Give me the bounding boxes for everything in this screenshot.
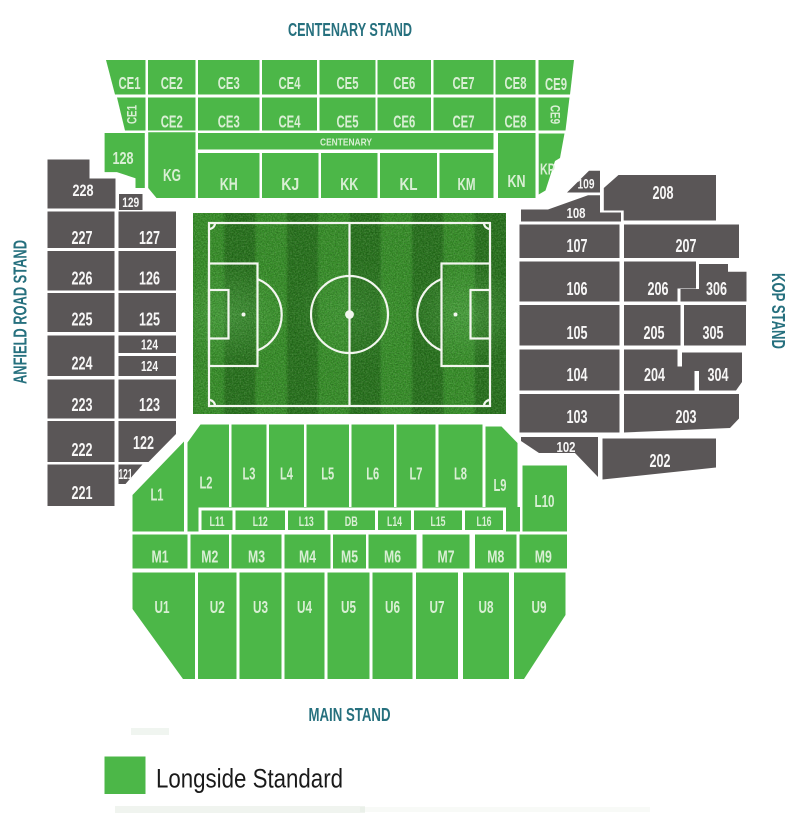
svg-text:CE8: CE8 [505,73,527,93]
svg-text:MAIN STAND: MAIN STAND [309,704,391,725]
svg-text:L8: L8 [454,464,467,484]
svg-text:CE2: CE2 [161,73,183,93]
svg-text:KM: KM [458,174,476,194]
svg-text:L11: L11 [210,514,225,529]
svg-text:305: 305 [703,323,724,343]
svg-text:M3: M3 [248,547,265,567]
svg-text:108: 108 [567,205,586,222]
svg-text:221: 221 [72,483,93,503]
svg-text:L3: L3 [243,464,256,484]
svg-text:102: 102 [557,439,576,456]
svg-text:M2: M2 [201,547,218,567]
svg-text:126: 126 [139,269,160,289]
svg-text:109: 109 [578,176,595,192]
svg-text:CE8: CE8 [505,112,527,132]
svg-text:208: 208 [653,183,674,203]
svg-text:L14: L14 [387,514,402,529]
svg-text:223: 223 [72,395,93,415]
svg-text:228: 228 [73,182,94,200]
svg-text:CE6: CE6 [393,73,415,93]
svg-text:203: 203 [676,407,697,427]
svg-text:CE6: CE6 [393,112,415,132]
svg-text:205: 205 [644,323,665,343]
svg-text:CE3: CE3 [218,73,240,93]
svg-text:L15: L15 [431,514,446,529]
svg-text:L6: L6 [366,464,379,484]
svg-text:KL: KL [400,174,418,194]
svg-text:304: 304 [708,365,729,385]
svg-text:123: 123 [139,395,160,415]
svg-text:L5: L5 [321,464,334,484]
svg-text:KG: KG [163,165,181,185]
svg-text:CE9: CE9 [548,105,563,124]
svg-text:L7: L7 [410,464,423,484]
svg-text:U5: U5 [341,597,356,617]
svg-text:202: 202 [650,451,671,471]
svg-text:CENTENARY: CENTENARY [320,137,372,149]
svg-text:KP: KP [540,162,555,179]
svg-text:CE5: CE5 [337,73,359,93]
svg-text:204: 204 [644,365,665,385]
svg-text:226: 226 [72,269,93,289]
svg-text:M1: M1 [152,547,169,567]
svg-text:227: 227 [72,228,93,248]
svg-text:306: 306 [706,279,727,299]
svg-text:L12: L12 [253,514,268,529]
svg-text:L9: L9 [494,475,507,495]
svg-text:CE4: CE4 [279,73,301,93]
svg-text:U6: U6 [385,597,400,617]
svg-text:106: 106 [567,279,588,299]
svg-text:222: 222 [72,440,93,460]
svg-text:L16: L16 [477,514,492,529]
svg-text:CE7: CE7 [453,112,475,132]
svg-text:U4: U4 [297,597,312,617]
svg-text:KK: KK [340,174,358,194]
svg-text:U1: U1 [155,597,170,617]
svg-text:M8: M8 [487,547,504,567]
svg-text:124: 124 [141,337,158,354]
svg-text:U3: U3 [253,597,268,617]
svg-text:DB: DB [345,514,358,529]
svg-text:CE5: CE5 [337,112,359,132]
svg-text:125: 125 [139,310,160,330]
svg-text:105: 105 [567,323,588,343]
svg-text:KJ: KJ [281,174,299,194]
svg-text:L1: L1 [151,485,164,505]
svg-text:M5: M5 [341,547,358,567]
svg-text:CE9: CE9 [545,74,567,94]
svg-text:128: 128 [113,148,134,168]
svg-text:L2: L2 [200,473,213,493]
svg-text:224: 224 [72,354,93,374]
svg-text:207: 207 [676,236,697,256]
svg-text:CENTENARY STAND: CENTENARY STAND [288,19,412,40]
svg-text:M4: M4 [299,547,316,567]
svg-text:U7: U7 [430,597,445,617]
svg-text:124: 124 [141,358,158,375]
svg-text:127: 127 [139,228,160,248]
svg-text:129: 129 [122,195,139,210]
svg-text:CE1: CE1 [125,105,140,124]
svg-text:U9: U9 [532,597,547,617]
svg-text:104: 104 [567,365,588,385]
svg-text:206: 206 [648,279,669,299]
svg-text:121: 121 [119,466,133,483]
svg-text:U8: U8 [479,597,494,617]
svg-text:225: 225 [72,310,93,330]
svg-text:122: 122 [133,433,154,453]
svg-text:103: 103 [567,407,588,427]
svg-text:107: 107 [567,236,588,256]
svg-text:M7: M7 [438,547,455,567]
svg-text:M9: M9 [535,547,552,567]
svg-text:L10: L10 [535,491,555,511]
svg-text:M6: M6 [384,547,401,567]
svg-text:CE4: CE4 [279,112,301,132]
svg-text:Longside Standard: Longside Standard [156,764,343,794]
svg-text:KOP STAND: KOP STAND [768,273,789,349]
svg-text:KH: KH [220,174,238,194]
svg-text:L4: L4 [280,464,293,484]
svg-text:CE1: CE1 [119,73,141,93]
svg-text:CE3: CE3 [218,112,240,132]
svg-text:U2: U2 [210,597,225,617]
svg-text:ANFIELD ROAD STAND: ANFIELD ROAD STAND [10,240,31,384]
svg-text:L13: L13 [299,514,314,529]
svg-text:CE2: CE2 [161,112,183,132]
svg-text:KN: KN [508,171,526,191]
svg-text:CE7: CE7 [453,73,475,93]
